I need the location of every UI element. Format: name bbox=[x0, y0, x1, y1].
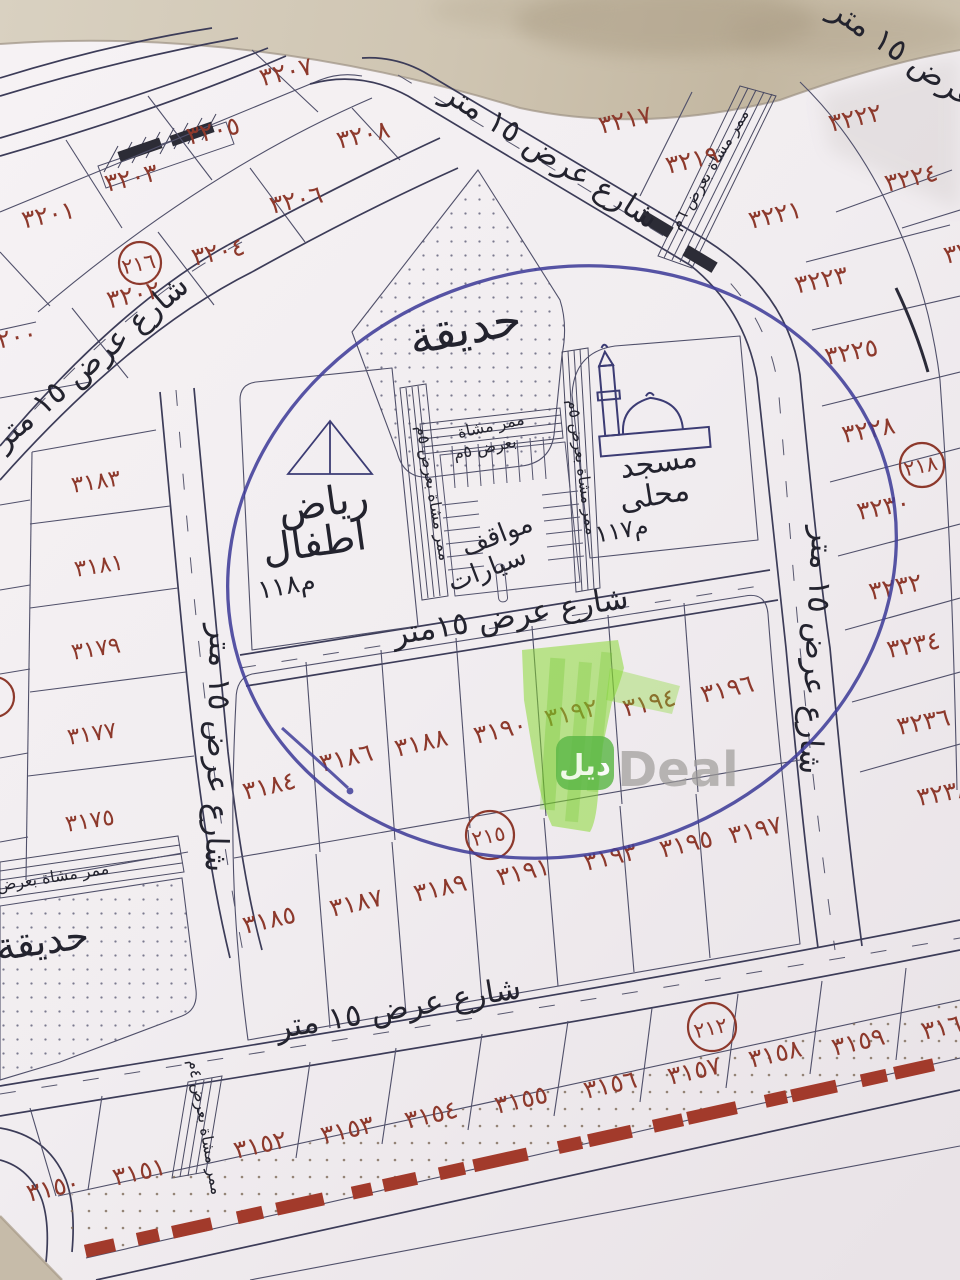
street-label-left-vertical: شارع عرض ١٥ متر bbox=[198, 622, 238, 873]
watermark-badge-text: ديل bbox=[559, 748, 611, 782]
watermark: ديل Deal bbox=[556, 736, 739, 798]
watermark-brand-text: Deal bbox=[617, 742, 738, 798]
pen-dot bbox=[347, 788, 354, 795]
plat-map-svg: شارع عرض ١٥ متر شارع عرض ١٥ متر شارع عرض… bbox=[0, 0, 960, 1280]
photo-of-plat-map: شارع عرض ١٥ متر شارع عرض ١٥ متر شارع عرض… bbox=[0, 0, 960, 1280]
